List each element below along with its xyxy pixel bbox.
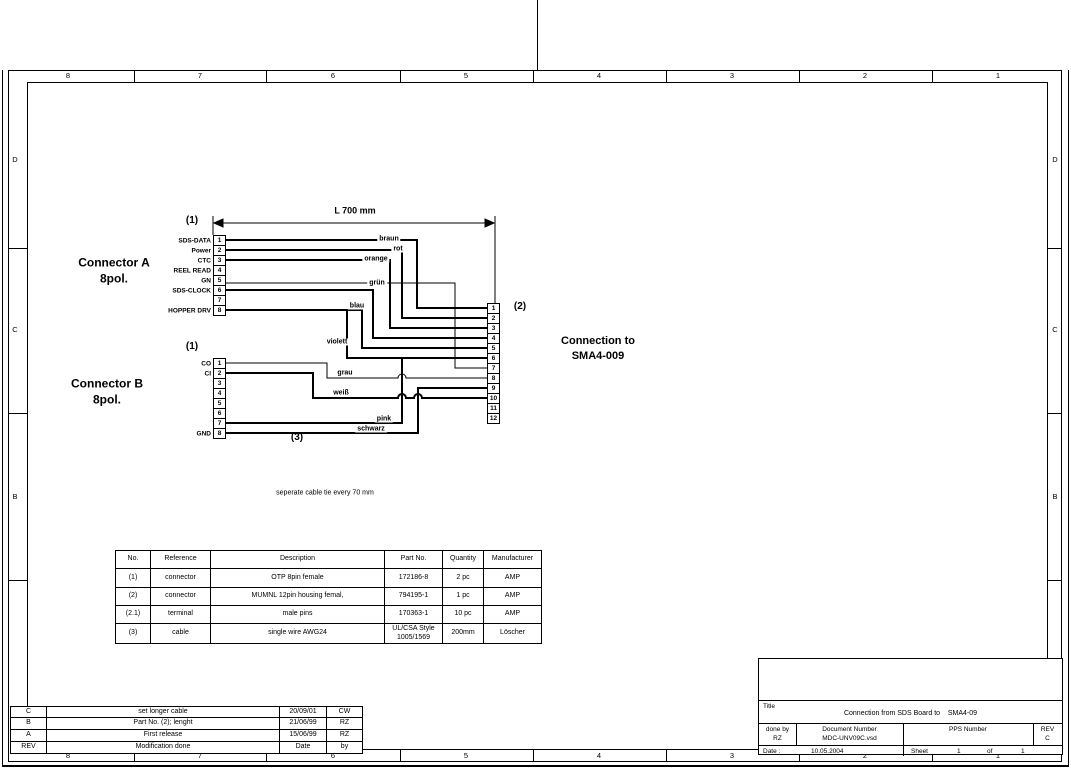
- table-cell: Date: [280, 742, 327, 754]
- wire-color-label-grau: grau: [335, 370, 354, 377]
- table-cell: 21/06/99: [280, 718, 327, 730]
- table-cell: 15/06/99: [280, 730, 327, 742]
- document-number-value: MDC-UNV09C.vsd: [796, 735, 903, 742]
- table-row: No.ReferenceDescriptionPart No.QuantityM…: [116, 551, 542, 569]
- table-cell: 1 pc: [443, 588, 484, 606]
- done-by-value: RZ: [759, 735, 796, 742]
- info-row: done by RZ Document Number MDC-UNV09C.vs…: [759, 723, 1062, 745]
- connector-a-pin-label: SDS-CLOCK: [172, 288, 211, 295]
- table-cell: Manufacturer: [484, 551, 542, 569]
- wire-color-label-rot: rot: [391, 246, 404, 253]
- table-cell: REV: [11, 742, 47, 754]
- sheet-number: 1: [957, 748, 961, 755]
- table-cell: MUMNL 12pin housing femal,: [211, 588, 385, 606]
- table-cell: A: [11, 730, 47, 742]
- table-cell: 10 pc: [443, 606, 484, 624]
- pps-number-label: PPS Number: [903, 726, 1033, 733]
- wire-color-label-braun: braun: [377, 236, 400, 243]
- drawing-title: Connection from SDS Board to SMA4-09: [759, 710, 1062, 717]
- wire-color-label-pink: pink: [375, 416, 393, 423]
- title-label: Title: [763, 703, 775, 710]
- connector-a-pin-box: 8: [213, 305, 226, 316]
- table-cell: cable: [151, 624, 211, 644]
- table-row: (2.1)terminalmale pins170363-110 pcAMP: [116, 606, 542, 624]
- table-cell: C: [11, 707, 47, 718]
- table-cell: 170363-1: [385, 606, 443, 624]
- wire-weiss: [225, 373, 487, 398]
- table-cell: CW: [327, 707, 363, 718]
- wire-gn: [225, 283, 487, 368]
- table-cell: (3): [116, 624, 151, 644]
- date-value: 10.05.2004: [811, 748, 844, 755]
- wire-color-label-violett: violett: [325, 339, 350, 346]
- dimension-arrow-right: [485, 219, 494, 227]
- table-cell: No.: [116, 551, 151, 569]
- rev-value: C: [1033, 735, 1062, 742]
- table-cell: connector: [151, 588, 211, 606]
- connector-a-pin-label: Power: [191, 248, 211, 255]
- table-cell: Part No. (2); lenght: [47, 718, 280, 730]
- table-cell: Löscher: [484, 624, 542, 644]
- table-cell: (2.1): [116, 606, 151, 624]
- table-cell: Quantity: [443, 551, 484, 569]
- sheet-total: 1: [1021, 748, 1025, 755]
- date-sheet-row: Date : 10.05.2004 Sheet 1 of 1: [759, 745, 1062, 756]
- table-cell: connector: [151, 569, 211, 588]
- connector-sma-pin-box: 12: [487, 413, 500, 424]
- table-cell: Description: [211, 551, 385, 569]
- table-row: Cset longer cable20/09/01CW: [11, 707, 363, 718]
- connector-a-pin-label: SDS-DATA: [178, 238, 211, 245]
- table-row: AFirst release15/06/99RZ: [11, 730, 363, 742]
- table-cell: RZ: [327, 718, 363, 730]
- done-by-label: done by: [759, 726, 796, 733]
- wire-color-label-gruen: grün: [367, 280, 387, 287]
- date-label: Date :: [763, 748, 780, 755]
- connector-b-pin-box: 8: [213, 428, 226, 439]
- connector-b-pin-label: CI: [205, 371, 212, 378]
- wire-color-label-weiss: weiß: [331, 390, 351, 397]
- table-cell: single wire AWG24: [211, 624, 385, 644]
- table-cell: 794195-1: [385, 588, 443, 606]
- table-cell: OTP 8pin female: [211, 569, 385, 588]
- table-cell: Reference: [151, 551, 211, 569]
- table-cell: UL/CSA Style 1005/1569: [385, 624, 443, 644]
- connector-b-pin-label: GND: [197, 431, 211, 438]
- wire-color-label-blau: blau: [348, 303, 366, 310]
- table-cell: male pins: [211, 606, 385, 624]
- table-cell: 172186-8: [385, 569, 443, 588]
- table-cell: terminal: [151, 606, 211, 624]
- table-cell: 2 pc: [443, 569, 484, 588]
- dimension-arrow-left: [214, 219, 223, 227]
- sheet-label: Sheet: [911, 748, 928, 755]
- title-block: Title Connection from SDS Board to SMA4-…: [758, 658, 1063, 755]
- table-cell: Modification done: [47, 742, 280, 754]
- table-cell: by: [327, 742, 363, 754]
- table-cell: set longer cable: [47, 707, 280, 718]
- wiring-diagram: [0, 0, 1071, 768]
- table-cell: (2): [116, 588, 151, 606]
- wire-color-label-schwarz: schwarz: [355, 426, 387, 433]
- title-row: Title Connection from SDS Board to SMA4-…: [759, 700, 1062, 723]
- table-cell: B: [11, 718, 47, 730]
- table-cell: Part No.: [385, 551, 443, 569]
- connector-a-pin-label: CTC: [198, 258, 211, 265]
- table-row: (2)connectorMUMNL 12pin housing femal,79…: [116, 588, 542, 606]
- connector-a-pin-label: HOPPER DRV: [168, 308, 211, 315]
- parts-table: No.ReferenceDescriptionPart No.QuantityM…: [115, 550, 542, 644]
- table-cell: (1): [116, 569, 151, 588]
- wire-grau: [225, 363, 487, 378]
- wire-gruen: [225, 290, 487, 338]
- table-cell: RZ: [327, 730, 363, 742]
- revision-table: Cset longer cable20/09/01CWBPart No. (2)…: [10, 706, 363, 754]
- connector-a-pin-label: REEL READ: [174, 268, 211, 275]
- connector-a-pin-label: GN: [201, 278, 211, 285]
- connector-b-pin-label: CO: [201, 361, 211, 368]
- sheet-of-label: of: [987, 748, 992, 755]
- table-cell: 200mm: [443, 624, 484, 644]
- table-cell: 20/09/01: [280, 707, 327, 718]
- table-row: REVModification doneDateby: [11, 742, 363, 754]
- table-cell: AMP: [484, 569, 542, 588]
- rev-label: REV: [1033, 726, 1062, 733]
- table-cell: First release: [47, 730, 280, 742]
- table-row: BPart No. (2); lenght21/06/99RZ: [11, 718, 363, 730]
- table-cell: AMP: [484, 588, 542, 606]
- table-row: (3)cablesingle wire AWG24UL/CSA Style 10…: [116, 624, 542, 644]
- document-number-label: Document Number: [796, 726, 903, 733]
- wire-color-label-orange: orange: [362, 256, 389, 263]
- table-row: (1)connectorOTP 8pin female172186-82 pcA…: [116, 569, 542, 588]
- drawing-page: Connector A 8pol. Connector B 8pol. Conn…: [0, 0, 1071, 768]
- table-cell: AMP: [484, 606, 542, 624]
